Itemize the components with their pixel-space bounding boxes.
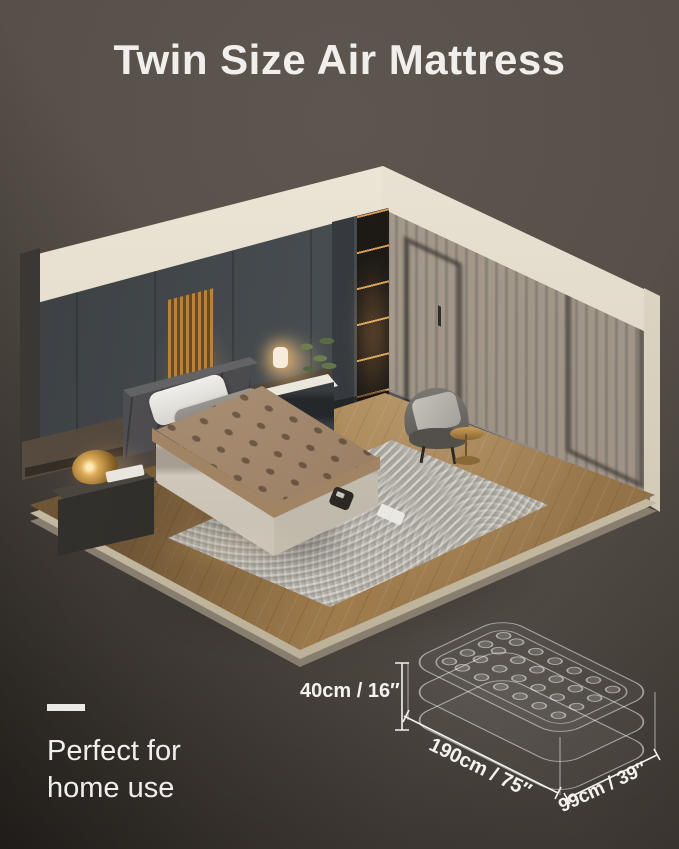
side-table-shelf <box>455 456 480 465</box>
pump-display <box>336 491 345 499</box>
door-handle <box>438 305 441 326</box>
tagline-line2: home use <box>47 770 181 807</box>
product-image: Twin Size Air Mattress <box>0 0 679 849</box>
tagline-dash <box>47 704 85 711</box>
height-dimension-label: 40cm / 16″ <box>300 680 396 703</box>
tagline-line1: Perfect for <box>47 733 181 770</box>
wall-sconce <box>273 347 288 368</box>
tagline-block: Perfect for home use <box>47 704 181 807</box>
side-table-top <box>450 427 484 440</box>
